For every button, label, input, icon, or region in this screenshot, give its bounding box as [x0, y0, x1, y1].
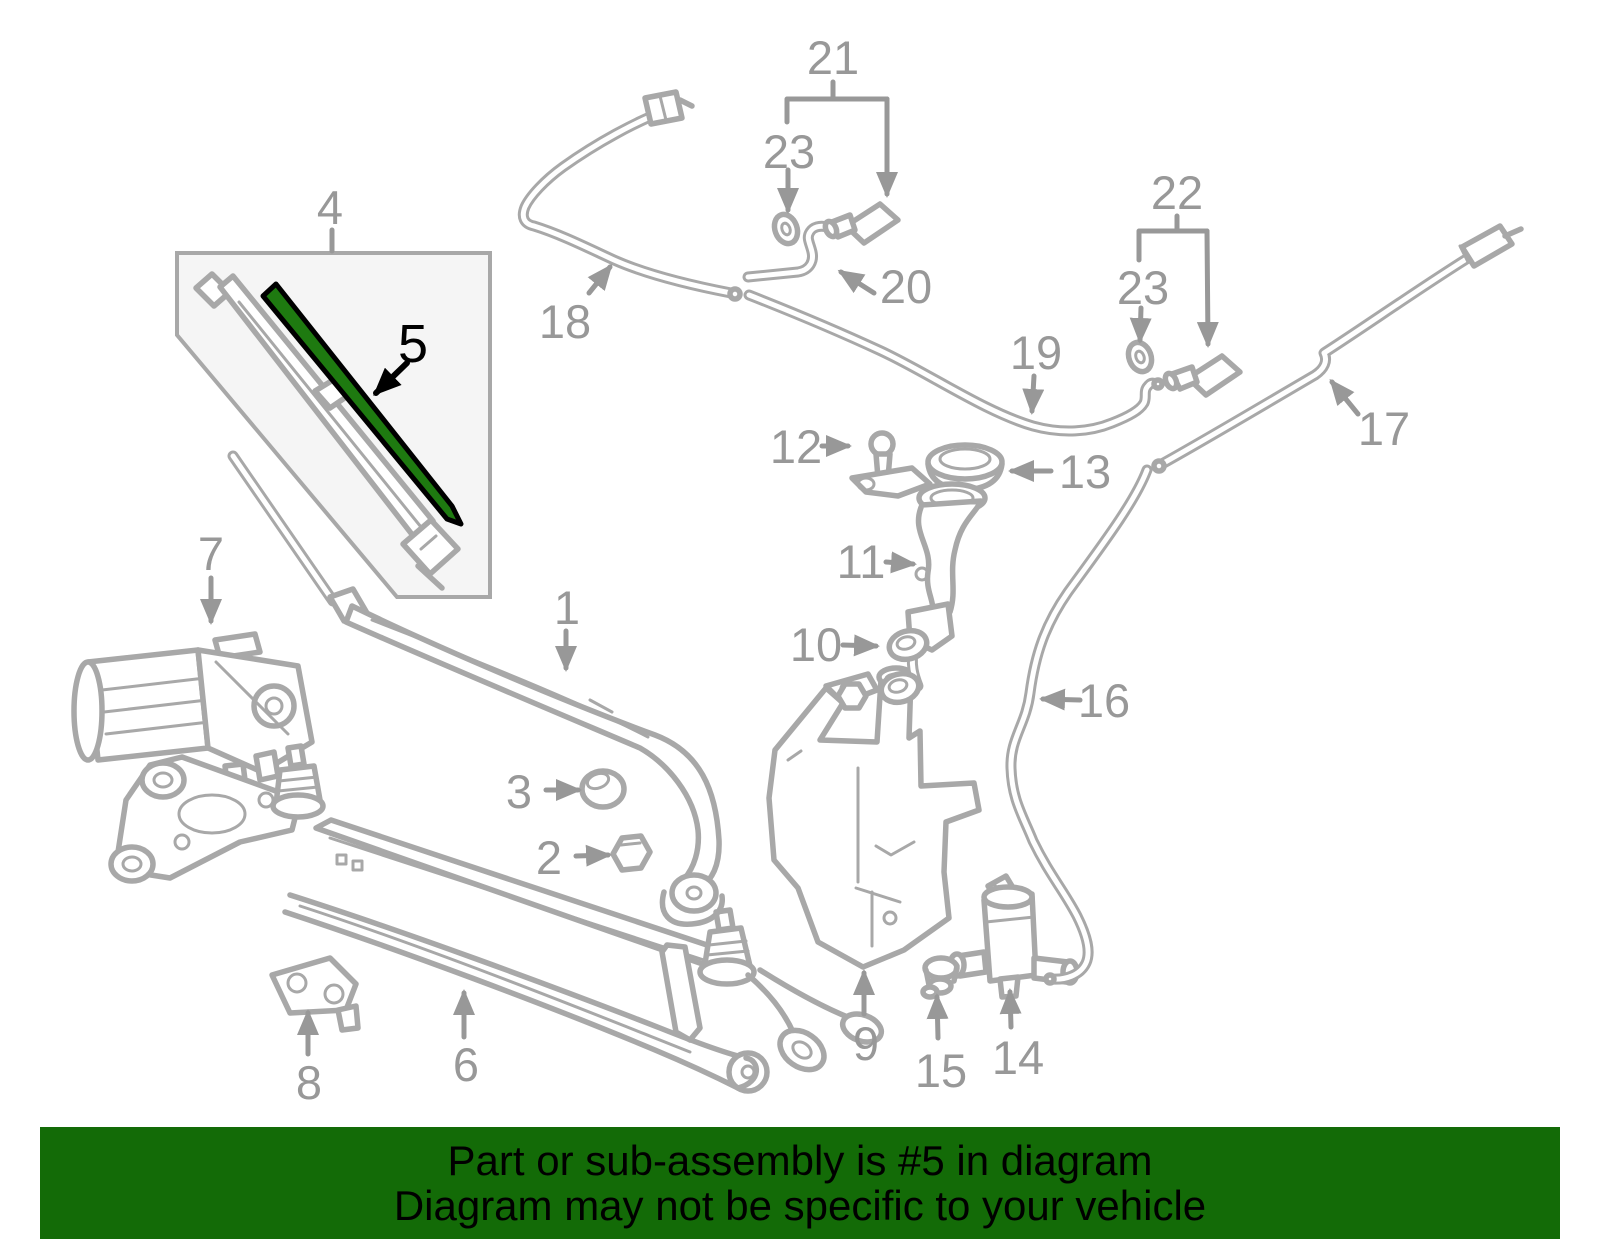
- banner-line-2: Diagram may not be specific to your vehi…: [394, 1183, 1206, 1228]
- pivot-nut: [613, 836, 650, 870]
- hose-upper-left: [523, 92, 740, 299]
- callout-12[interactable]: 12: [770, 420, 822, 473]
- callout-19[interactable]: 19: [1010, 326, 1062, 379]
- callout-15[interactable]: 15: [915, 1044, 967, 1097]
- callout-9[interactable]: 9: [853, 1017, 879, 1070]
- callout-2[interactable]: 2: [536, 831, 562, 884]
- callout-10[interactable]: 10: [790, 618, 842, 671]
- banner-line-1: Part or sub-assembly is #5 in diagram: [448, 1138, 1153, 1183]
- pump-grommet: [923, 958, 957, 997]
- callout-18[interactable]: 18: [539, 295, 591, 348]
- callout-14[interactable]: 14: [992, 1031, 1044, 1084]
- callout-3[interactable]: 3: [506, 765, 532, 818]
- callout-8[interactable]: 8: [296, 1056, 322, 1109]
- washer-nozzle-left: [823, 204, 898, 243]
- callout-7[interactable]: 7: [198, 527, 224, 580]
- grommet-right: [1125, 339, 1156, 375]
- callout-20[interactable]: 20: [880, 260, 932, 313]
- callout-16[interactable]: 16: [1078, 674, 1130, 727]
- callout-6[interactable]: 6: [453, 1038, 479, 1091]
- mount-bracket: [272, 958, 358, 1030]
- parts-diagram: 1 2 3 4 5 6 7 8 9 10 11 12 13 14 15 16 1…: [0, 0, 1600, 1249]
- callout-13[interactable]: 13: [1059, 445, 1111, 498]
- callout-1[interactable]: 1: [554, 581, 580, 634]
- callout-5[interactable]: 5: [398, 314, 428, 374]
- washer-nozzle-right: [1163, 356, 1240, 395]
- callout-11[interactable]: 11: [837, 535, 886, 588]
- callout-22[interactable]: 22: [1151, 166, 1203, 219]
- hose-middle-19: [749, 295, 1162, 431]
- parts-diagram-page: 1 2 3 4 5 6 7 8 9 10 11 12 13 14 15 16 1…: [0, 0, 1600, 1249]
- callout-23-left[interactable]: 23: [763, 125, 815, 178]
- status-banner: Part or sub-assembly is #5 in diagram Di…: [40, 1127, 1560, 1239]
- callout-21[interactable]: 21: [807, 31, 859, 84]
- pivot-grommet: [582, 771, 624, 807]
- grommet-left: [771, 211, 802, 247]
- washer-reservoir: [769, 668, 979, 967]
- callout-23-right[interactable]: 23: [1117, 261, 1169, 314]
- grommet-ring-upper: [886, 627, 930, 664]
- callout-4[interactable]: 4: [317, 181, 343, 234]
- callout-17[interactable]: 17: [1358, 402, 1410, 455]
- small-hex-nut: [838, 684, 866, 708]
